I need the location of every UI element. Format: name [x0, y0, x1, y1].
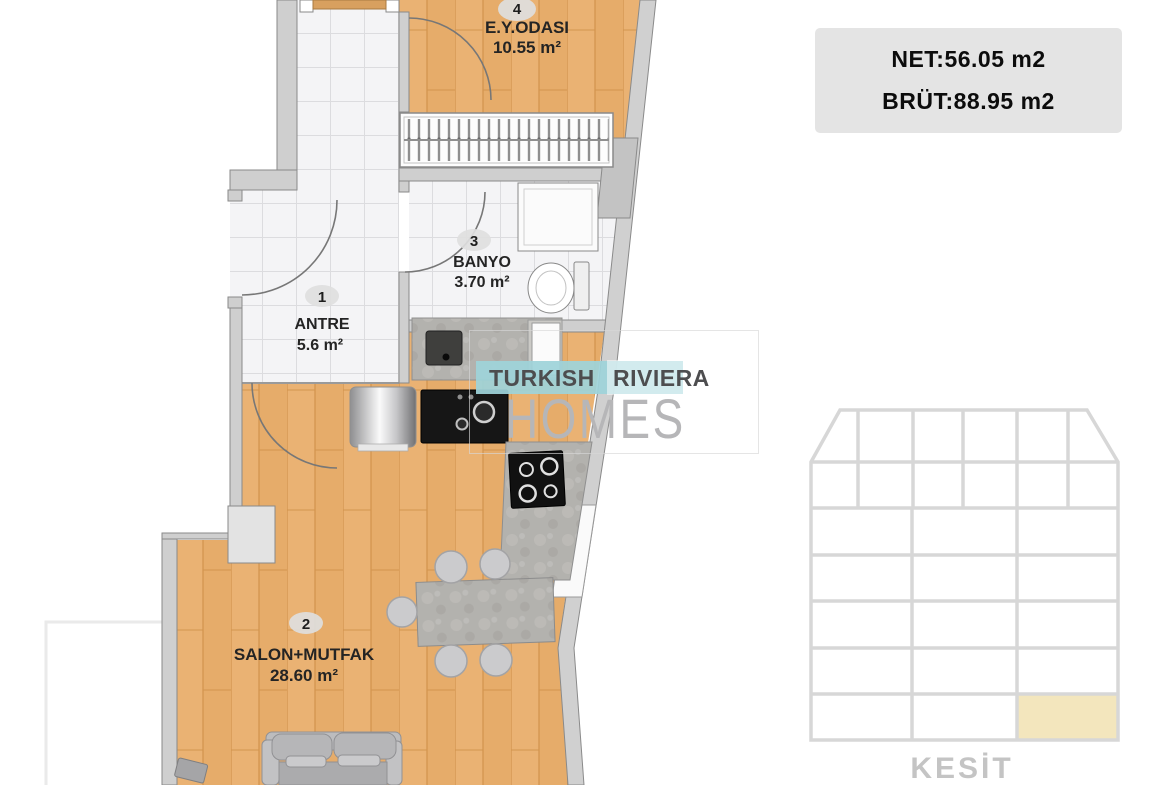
wall-pillar [228, 506, 275, 563]
watermark-word-homes: HOMES [505, 391, 686, 447]
chair-icon [480, 549, 510, 579]
wall-banyo-top [399, 168, 622, 181]
section-diagram: KESİT [811, 410, 1118, 785]
chair-icon [480, 644, 512, 676]
adjacent-structure-outline [46, 622, 162, 785]
dining-table-icon [416, 578, 555, 647]
wall-left-upper [277, 0, 297, 172]
wall-corridor-right-1 [399, 12, 409, 112]
room-number: 2 [302, 616, 310, 633]
room-number: 3 [470, 233, 478, 250]
wall-left-mid [230, 308, 242, 506]
toilet-icon [528, 262, 589, 313]
wall-left-outer [162, 533, 177, 785]
room-area: 10.55 m² [493, 38, 561, 57]
room-number: 4 [513, 1, 522, 18]
room-area: 5.6 m² [297, 337, 343, 354]
wall-left-jog [230, 170, 297, 190]
wall-corridor-right-3 [399, 272, 409, 383]
entry-door-jamb-top [228, 190, 242, 201]
section-grid [811, 410, 1118, 740]
area-badge: NET:56.05 m2 BRÜT:88.95 m2 [815, 28, 1122, 133]
brut-area-text: BRÜT:88.95 m2 [815, 88, 1122, 115]
top-door-jamb-right [386, 0, 399, 12]
entry-door-jamb-bottom [228, 297, 242, 308]
room-area: 3.70 m² [454, 274, 509, 291]
room-name: E.Y.ODASI [485, 18, 569, 37]
chair-icon [387, 597, 417, 627]
kitchen-sink-icon [421, 390, 508, 443]
stove-icon [509, 451, 566, 509]
chair-icon [435, 551, 467, 583]
top-door-jamb-left [300, 0, 313, 12]
room-name: SALON+MUTFAK [234, 645, 375, 664]
floorplan-page: 4 E.Y.ODASI 10.55 m² 3 BANYO 3.70 m² 1 A… [0, 0, 1170, 785]
shower-icon [518, 183, 598, 251]
net-area-text: NET:56.05 m2 [815, 46, 1122, 73]
room-number: 1 [318, 289, 326, 306]
wall-step-connector [162, 533, 228, 539]
room-name: BANYO [453, 254, 511, 271]
section-label: KESİT [910, 752, 1013, 785]
section-highlight-cell [1017, 694, 1118, 740]
chair-icon [435, 645, 467, 677]
room-name: ANTRE [294, 316, 349, 333]
wardrobe-icon [400, 113, 613, 167]
fridge-icon [350, 387, 416, 451]
entry-threshold [313, 0, 386, 9]
room-area: 28.60 m² [270, 666, 338, 685]
wall-oven-icon [426, 331, 462, 365]
